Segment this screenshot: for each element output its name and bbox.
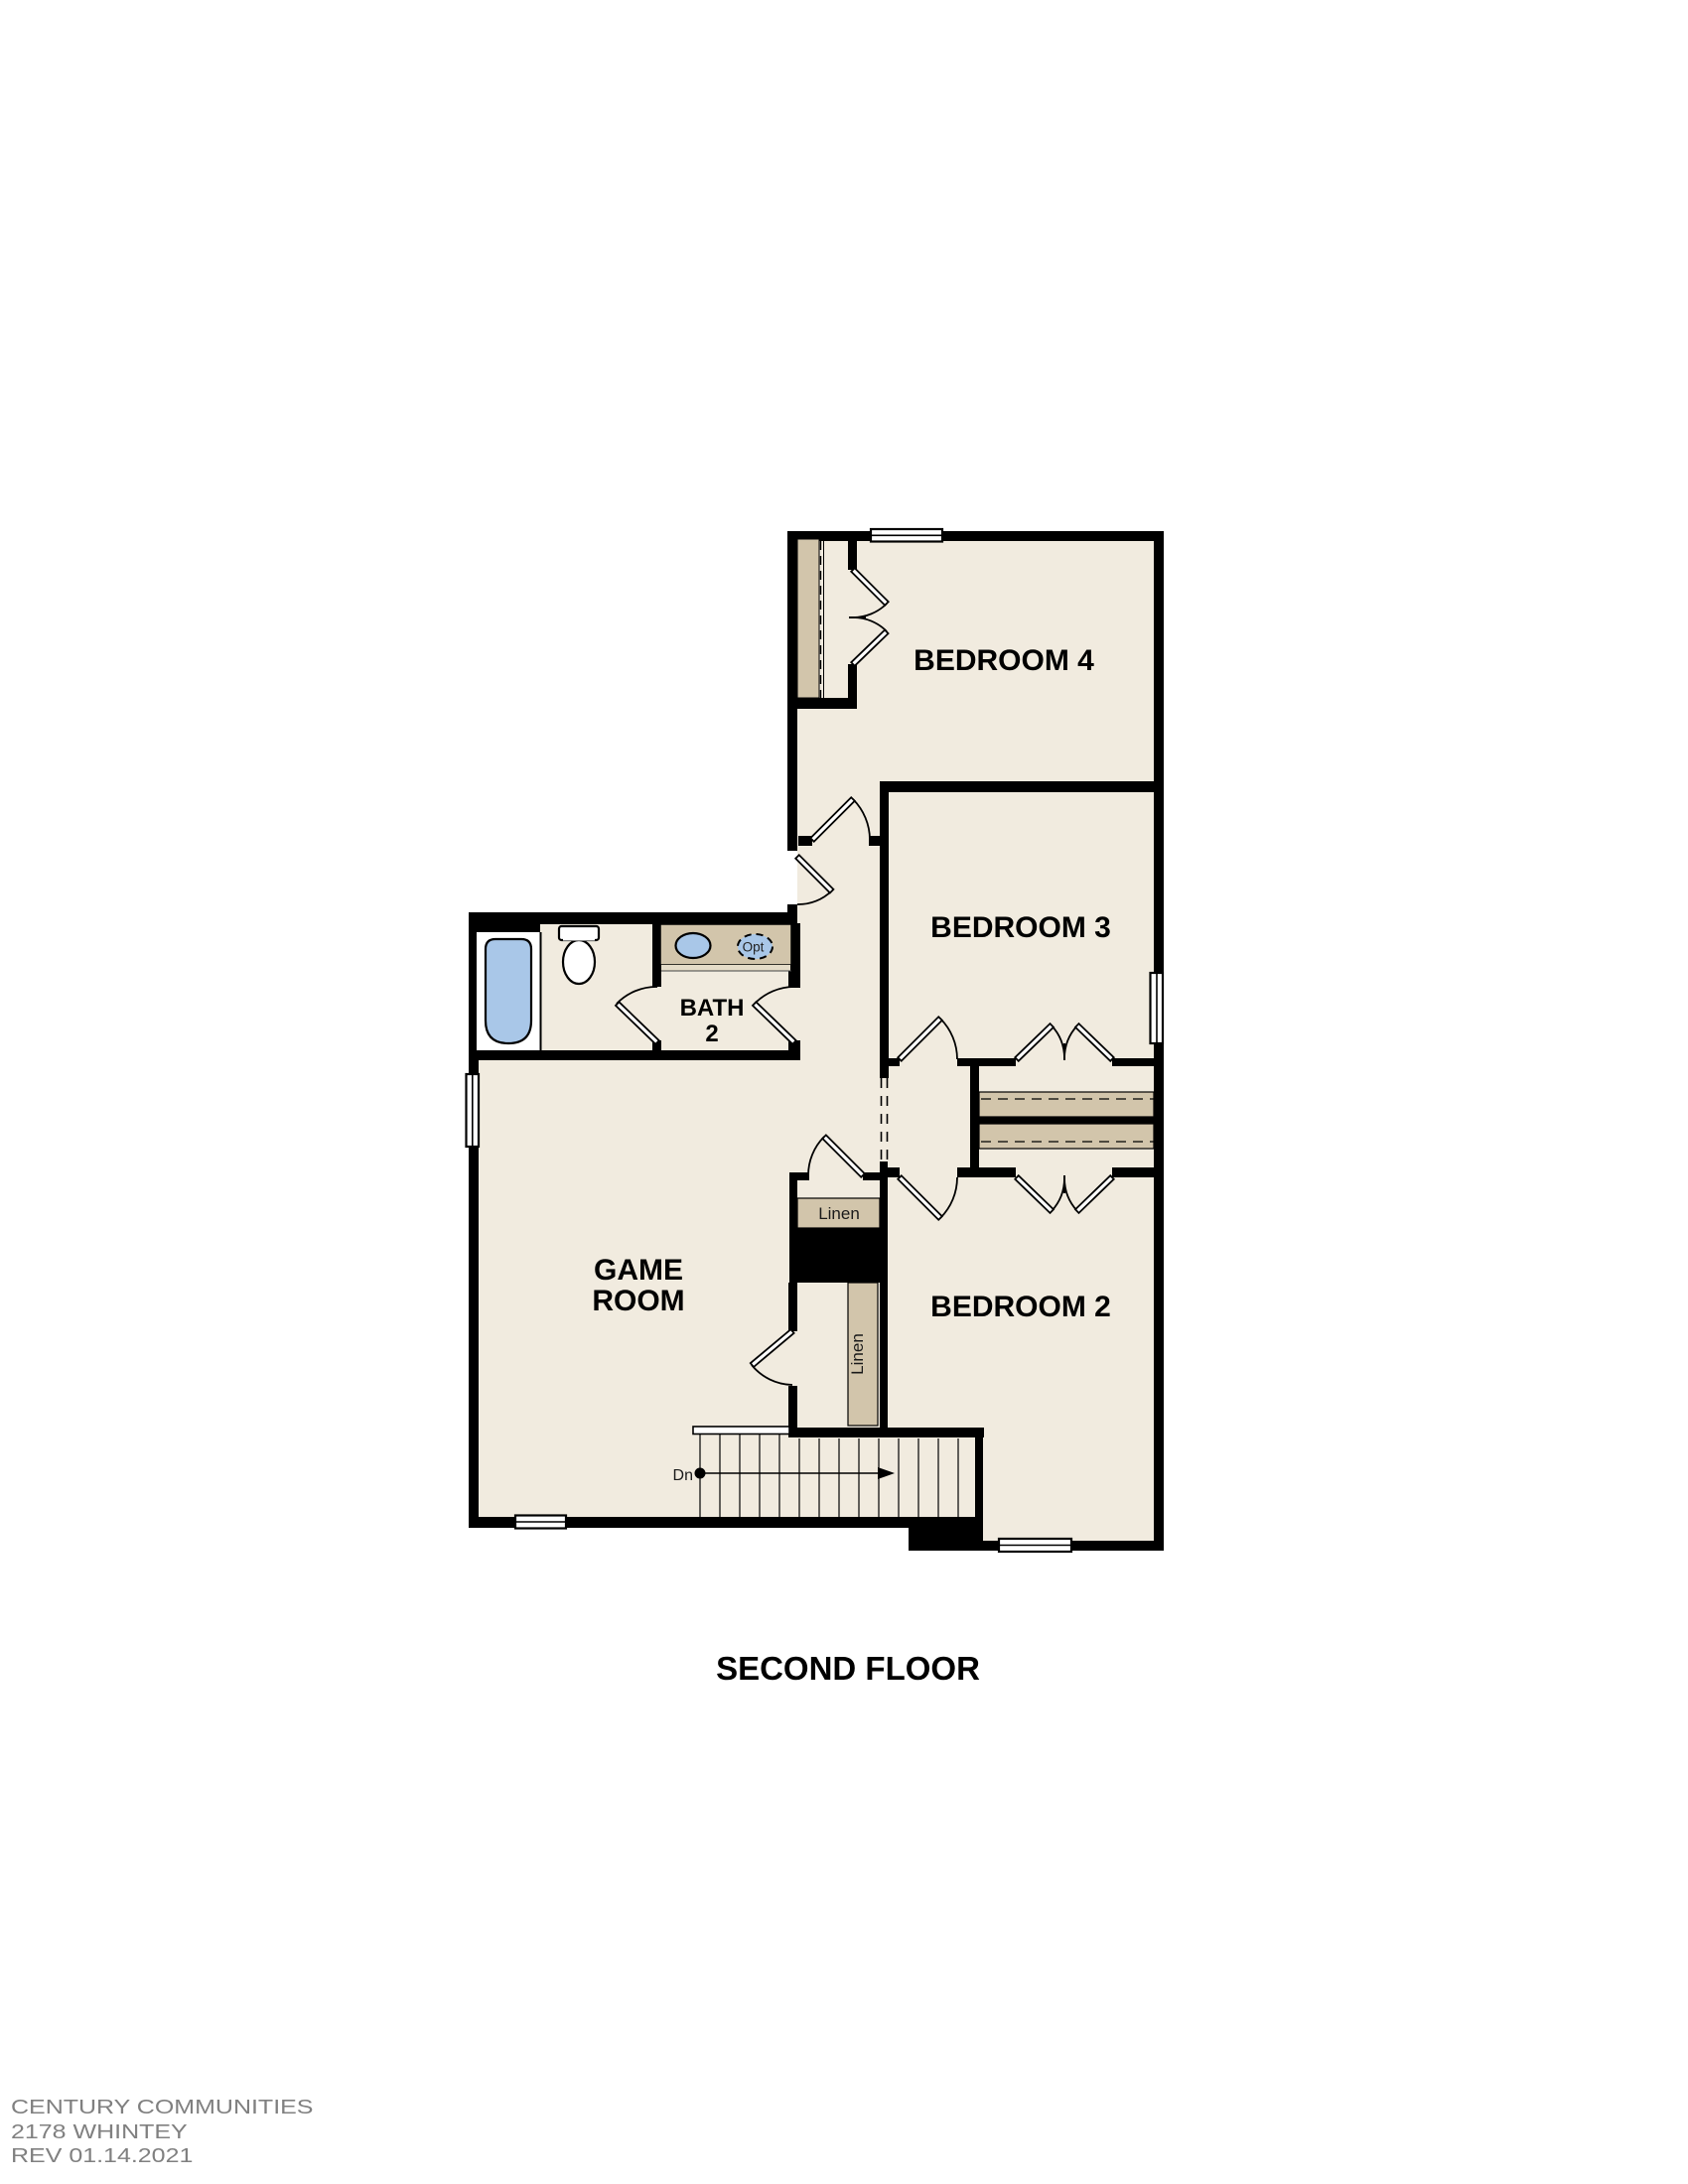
svg-text:2: 2	[705, 1021, 718, 1047]
svg-text:BEDROOM 4: BEDROOM 4	[914, 644, 1094, 677]
svg-text:Linen: Linen	[818, 1204, 860, 1223]
svg-text:Dn: Dn	[673, 1467, 693, 1484]
svg-text:CENTURY COMMUNITIES: CENTURY COMMUNITIES	[11, 2096, 313, 2117]
svg-text:BEDROOM 2: BEDROOM 2	[930, 1291, 1111, 1323]
svg-text:REV 01.14.2021: REV 01.14.2021	[11, 2144, 193, 2166]
svg-text:Linen: Linen	[848, 1333, 867, 1375]
svg-text:BEDROOM 3: BEDROOM 3	[930, 911, 1111, 944]
svg-text:BATH: BATH	[680, 995, 745, 1022]
svg-text:GAME: GAME	[594, 1254, 683, 1287]
svg-text:Opt: Opt	[743, 940, 765, 955]
svg-text:SECOND FLOOR: SECOND FLOOR	[716, 1650, 980, 1687]
svg-text:ROOM: ROOM	[592, 1285, 684, 1317]
svg-text:2178 WHINTEY: 2178 WHINTEY	[11, 2120, 188, 2142]
